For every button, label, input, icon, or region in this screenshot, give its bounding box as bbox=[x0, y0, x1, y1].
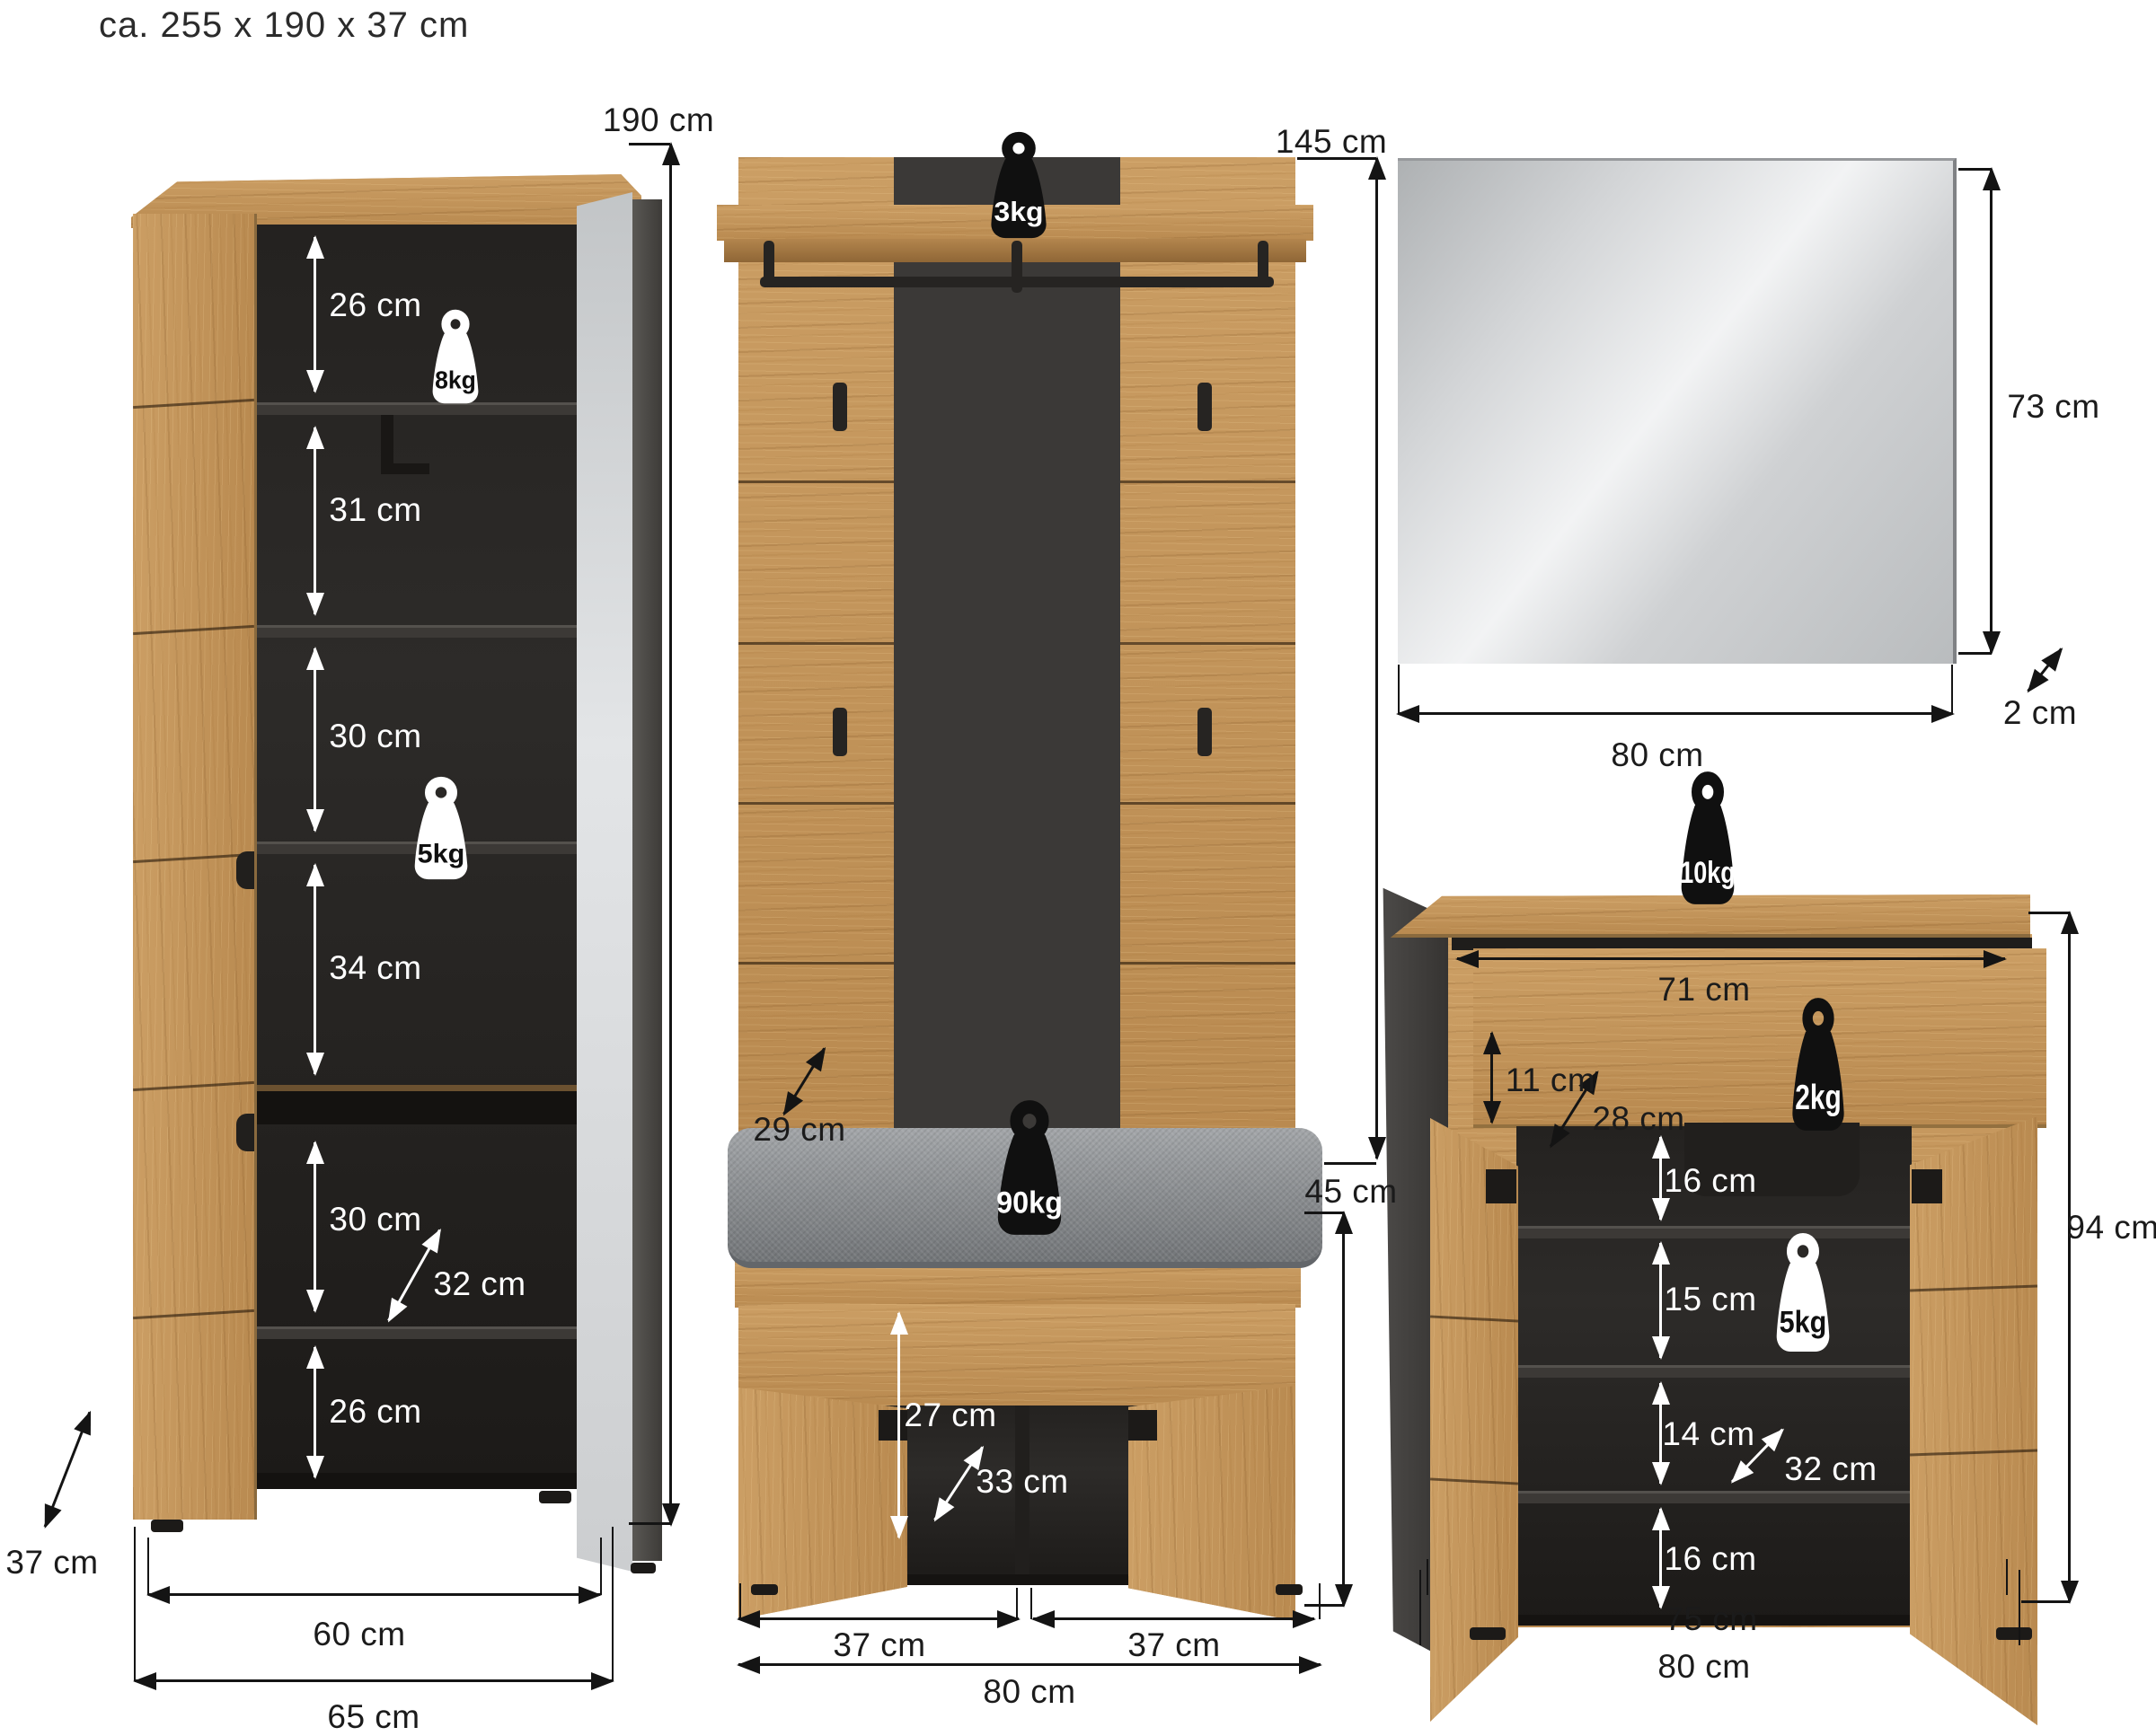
drawer-width-dim bbox=[1457, 957, 2005, 960]
bench-door-right-label: 37 cm bbox=[1127, 1626, 1220, 1664]
bench-inner-depth-label: 33 cm bbox=[976, 1463, 1068, 1501]
wardrobe-sec4-dim bbox=[314, 865, 316, 1074]
coatrack-depth-diag bbox=[782, 1047, 826, 1115]
mirror-width-label: 80 cm bbox=[1611, 736, 1703, 774]
dimension-tick-21 bbox=[2006, 1559, 2008, 1595]
cabinet-width75-label: 75 cm bbox=[1665, 1600, 1757, 1638]
dimension-tick-5 bbox=[612, 1527, 614, 1681]
weight-icon: 8kg bbox=[420, 309, 490, 404]
wardrobe-width65-label: 65 cm bbox=[327, 1698, 420, 1736]
cabinet-shelf3-label: 14 cm bbox=[1662, 1415, 1754, 1453]
wardrobe-sec2-dim bbox=[314, 427, 316, 614]
bench-width-label: 80 cm bbox=[983, 1673, 1075, 1711]
drawer-height-label: 11 cm bbox=[1506, 1062, 1596, 1099]
wardrobe-depth-label: 37 cm bbox=[5, 1544, 98, 1582]
wardrobe-height-dim bbox=[669, 144, 672, 1525]
dimension-tick-23 bbox=[2019, 1570, 2020, 1645]
cabinet-sec2-dim bbox=[1659, 1243, 1662, 1358]
wardrobe-width60-dim bbox=[148, 1593, 600, 1596]
cabinet-sec1-dim bbox=[1659, 1137, 1662, 1220]
coatrack-height-dim bbox=[1375, 158, 1378, 1159]
wardrobe-height-label: 190 cm bbox=[603, 101, 714, 139]
wardrobe-sec3-dim bbox=[314, 648, 316, 831]
dimension-tick-4 bbox=[134, 1527, 136, 1681]
bench-inner-dim bbox=[897, 1313, 900, 1538]
weight-icon: 5kg bbox=[401, 776, 482, 880]
cabinet-height-dim bbox=[2068, 912, 2071, 1602]
bench-door-right-dim bbox=[1033, 1617, 1314, 1620]
wardrobe-depth-diag bbox=[44, 1411, 92, 1527]
dimension-tick-20 bbox=[1427, 1559, 1428, 1595]
cabinet-shelf2-label: 15 cm bbox=[1664, 1281, 1756, 1318]
wardrobe-sec5-dim bbox=[314, 1142, 316, 1311]
svg-text:8kg: 8kg bbox=[435, 366, 476, 393]
wardrobe-shelf6-label: 26 cm bbox=[329, 1393, 421, 1431]
drawer-capacity: 2kg bbox=[1779, 997, 1858, 1132]
wardrobe-width65-dim bbox=[135, 1679, 613, 1682]
cabinet-height-label: 94 cm bbox=[2066, 1209, 2156, 1247]
drawer-width-label: 71 cm bbox=[1657, 971, 1750, 1009]
weight-icon: 3kg bbox=[976, 131, 1061, 239]
svg-text:10kg: 10kg bbox=[1680, 855, 1736, 890]
coatrack-depth-label: 29 cm bbox=[753, 1111, 845, 1149]
wardrobe-shelf2-label: 31 cm bbox=[329, 491, 421, 529]
cabinet-shelf1-label: 16 cm bbox=[1664, 1162, 1756, 1200]
wardrobe-depth32-label: 32 cm bbox=[433, 1265, 526, 1303]
annotations-layer: 190 cm26 cm31 cm30 cm34 cm30 cm32 cm26 c… bbox=[0, 0, 2156, 1736]
mirror-height-label: 73 cm bbox=[2007, 388, 2099, 426]
mirror-height-dim bbox=[1990, 169, 1993, 653]
weight-icon: 10kg bbox=[1667, 771, 1748, 905]
bench-door-left-label: 37 cm bbox=[833, 1626, 925, 1664]
mirror-depth-label: 2 cm bbox=[2003, 694, 2077, 732]
cabinet-shelf-capacity: 5kg bbox=[1763, 1232, 1843, 1353]
dimension-tick-22 bbox=[1419, 1570, 1421, 1645]
wardrobe-depth32-diag bbox=[387, 1229, 441, 1320]
drawer-depth-label: 28 cm bbox=[1592, 1100, 1684, 1138]
bench-capacity: 90kg bbox=[981, 1099, 1078, 1236]
bench-height-dim bbox=[1342, 1212, 1345, 1606]
wardrobe-shelf3-label: 30 cm bbox=[329, 718, 421, 755]
wardrobe-width60-label: 60 cm bbox=[313, 1616, 405, 1653]
wardrobe-shelf1-label: 26 cm bbox=[329, 286, 421, 324]
dimension-tick-7 bbox=[1324, 1162, 1376, 1165]
cabinet-sec4-dim bbox=[1659, 1509, 1662, 1608]
wardrobe-sec1-dim bbox=[314, 237, 316, 392]
svg-text:5kg: 5kg bbox=[1780, 1304, 1827, 1339]
furniture-dimension-diagram: ca. 255 x 190 x 37 cm bbox=[0, 0, 2156, 1736]
weight-icon: 90kg bbox=[981, 1099, 1078, 1236]
bench-inner-height-label: 27 cm bbox=[904, 1397, 996, 1434]
bench-door-left-dim bbox=[738, 1617, 1019, 1620]
wardrobe-sec6-dim bbox=[314, 1347, 316, 1477]
drawer-height-dim bbox=[1490, 1033, 1493, 1123]
dimension-tick-13 bbox=[1319, 1583, 1321, 1619]
wardrobe-shelf4-label: 34 cm bbox=[329, 949, 421, 987]
coatrack-height-label: 145 cm bbox=[1276, 123, 1387, 161]
cabinet-shelf4-label: 16 cm bbox=[1664, 1540, 1756, 1578]
svg-text:2kg: 2kg bbox=[1795, 1079, 1842, 1116]
svg-text:5kg: 5kg bbox=[418, 840, 465, 869]
bench-width-dim bbox=[738, 1663, 1321, 1666]
cabinet-depth32-label: 32 cm bbox=[1784, 1450, 1877, 1488]
weight-icon: 2kg bbox=[1779, 997, 1858, 1132]
cabinet-width80-label: 80 cm bbox=[1657, 1648, 1750, 1686]
cabinet-top-capacity: 10kg bbox=[1667, 771, 1748, 905]
svg-text:3kg: 3kg bbox=[994, 196, 1043, 226]
wardrobe-shelf5-label: 30 cm bbox=[329, 1201, 421, 1238]
weight-icon: 5kg bbox=[1763, 1232, 1843, 1353]
wardrobe-top-capacity: 8kg bbox=[420, 309, 490, 404]
bench-height-label: 45 cm bbox=[1304, 1173, 1397, 1211]
mirror-depth-diag bbox=[2027, 648, 2062, 692]
coatrack-capacity: 3kg bbox=[976, 131, 1061, 239]
svg-text:90kg: 90kg bbox=[996, 1186, 1063, 1220]
mirror-width-dim bbox=[1398, 712, 1953, 715]
wardrobe-mid-capacity: 5kg bbox=[401, 776, 482, 880]
